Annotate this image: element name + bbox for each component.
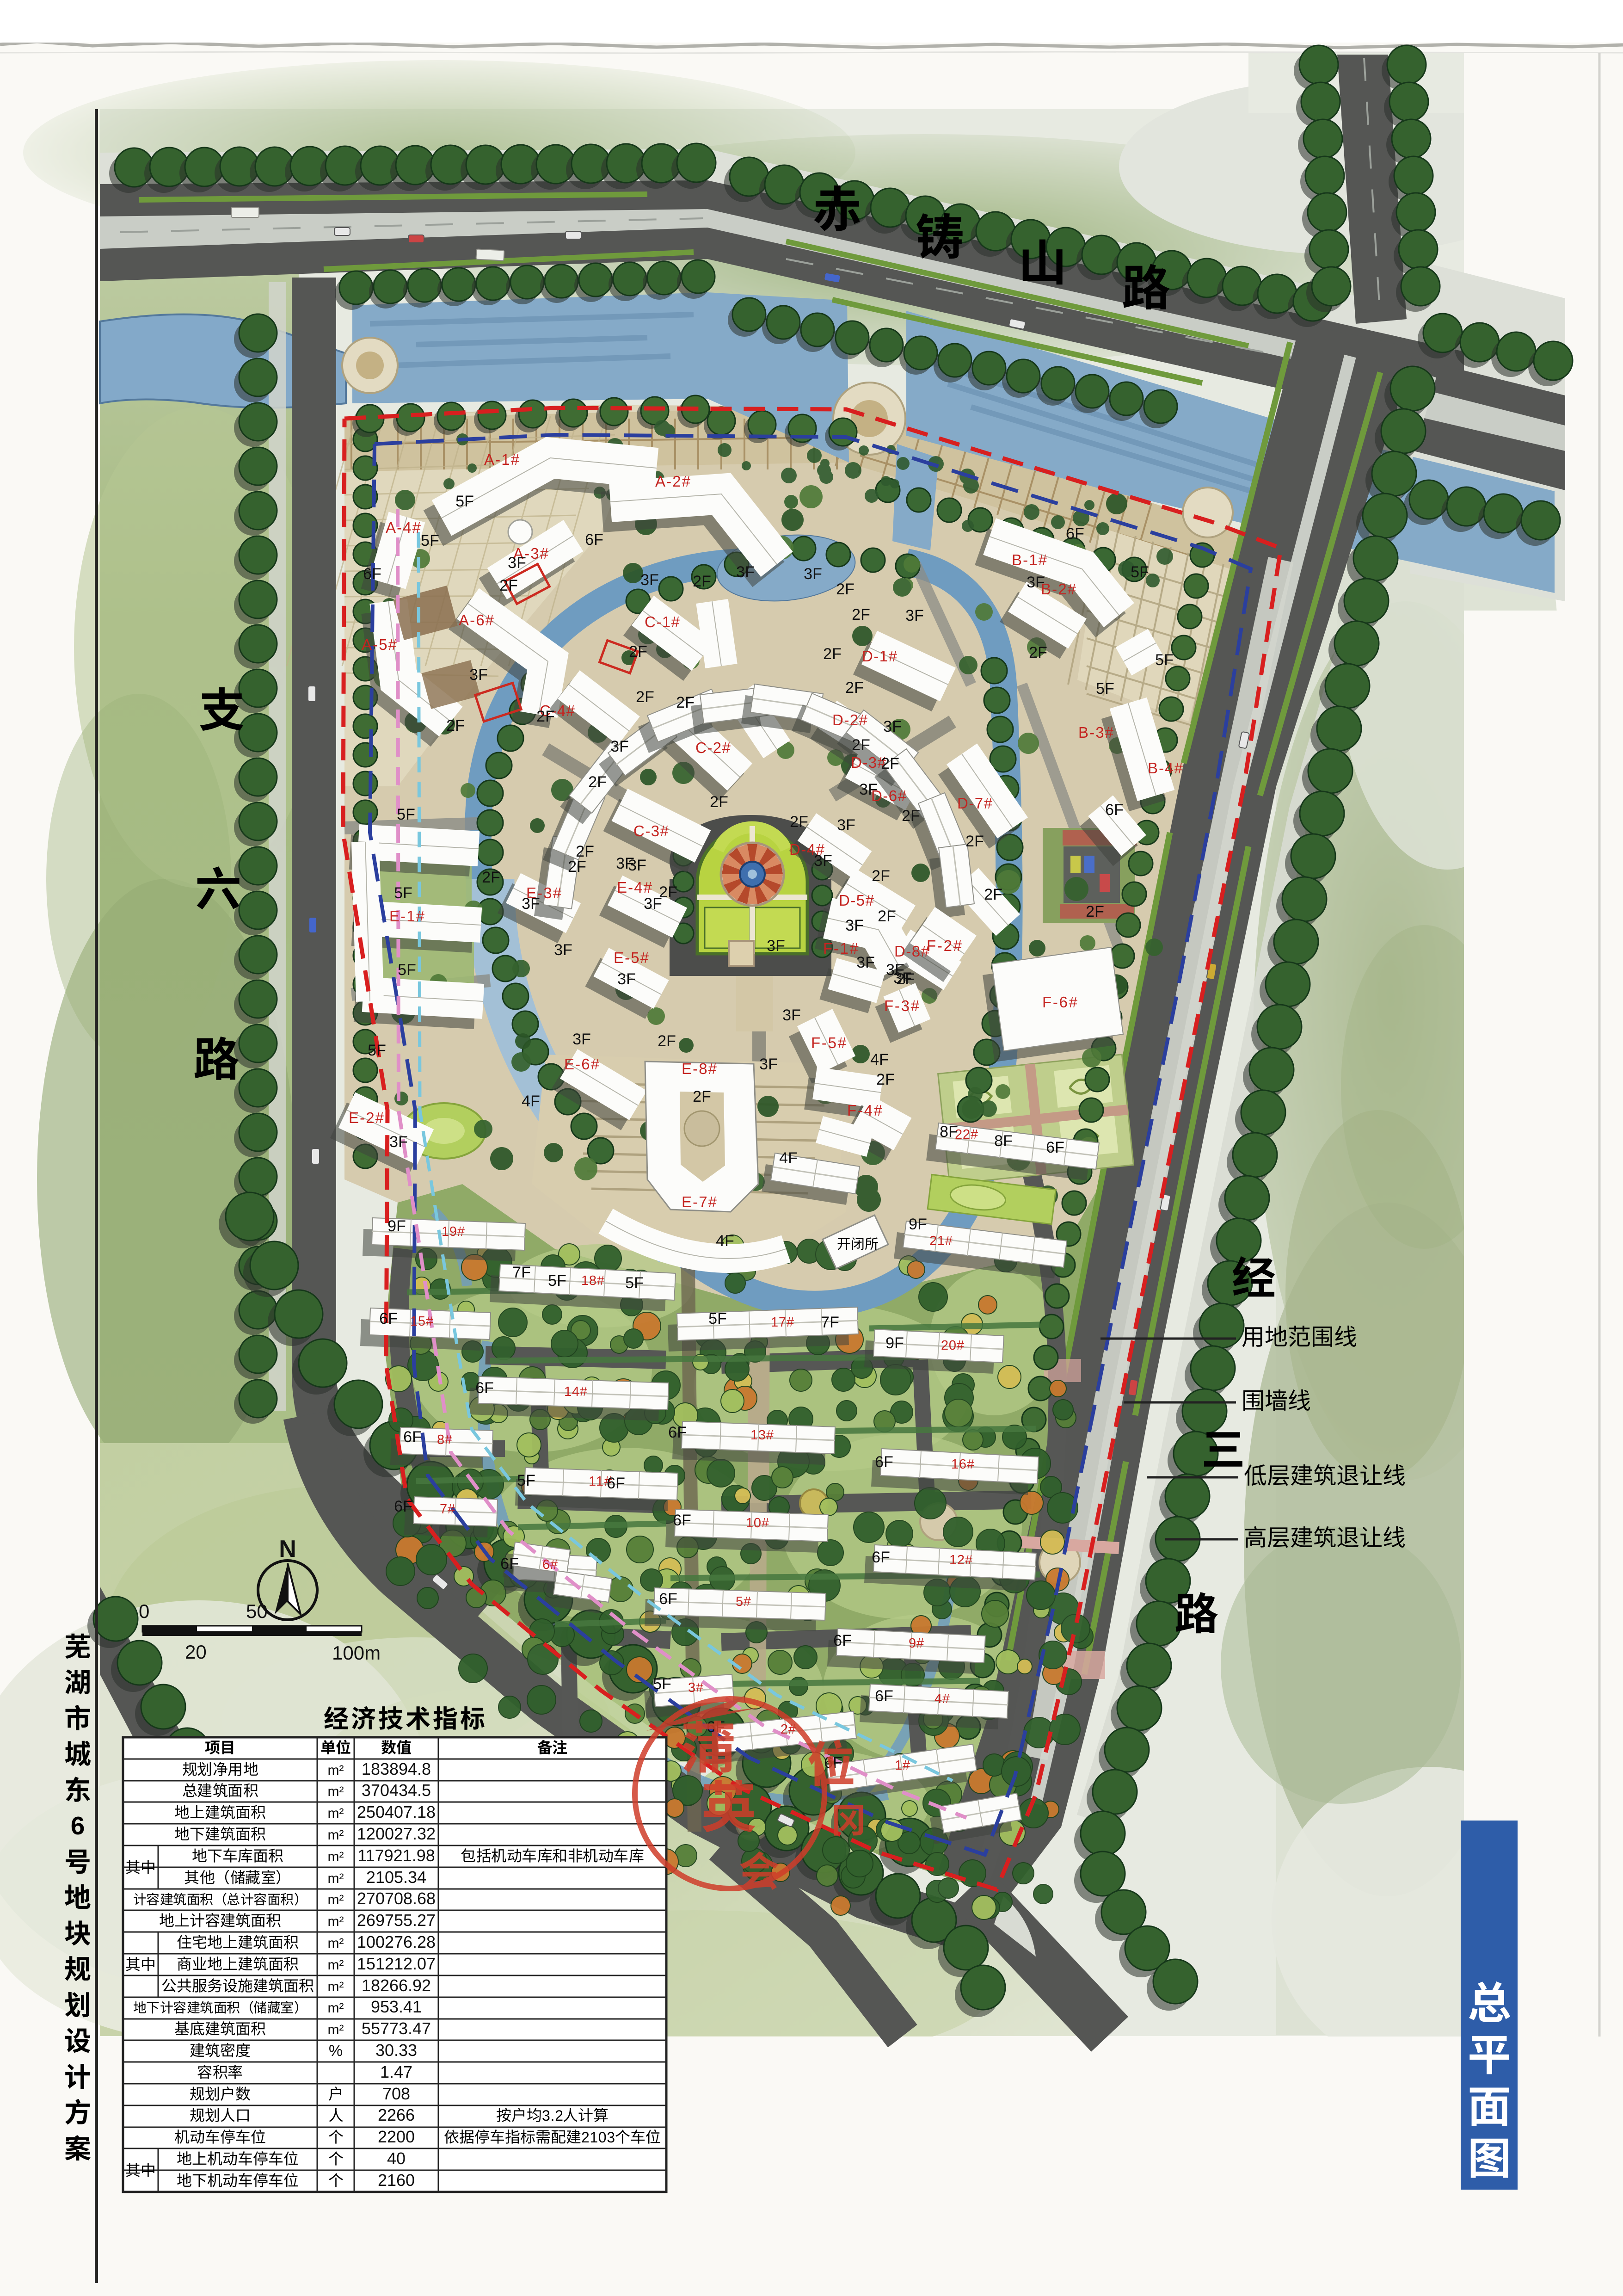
svg-text:2F: 2F	[658, 1032, 676, 1050]
svg-text:6F: 6F	[403, 1428, 422, 1446]
svg-text:10#: 10#	[746, 1516, 769, 1531]
svg-text:3F: 3F	[616, 855, 634, 872]
svg-text:F-6#: F-6#	[1042, 994, 1078, 1011]
svg-text:2F: 2F	[636, 688, 654, 706]
svg-text:250407.18: 250407.18	[357, 1802, 436, 1821]
svg-text:3F: 3F	[522, 895, 540, 913]
svg-text:18266.92: 18266.92	[362, 1976, 431, 1995]
svg-text:D-1#: D-1#	[862, 648, 898, 665]
svg-text:6F: 6F	[500, 1555, 519, 1573]
svg-text:151212.07: 151212.07	[357, 1954, 436, 1973]
svg-text:14#: 14#	[564, 1384, 587, 1399]
svg-text:6: 6	[71, 1811, 85, 1840]
svg-text:6F: 6F	[872, 1549, 890, 1566]
svg-text:9F: 9F	[885, 1334, 904, 1352]
svg-text:4F: 4F	[522, 1092, 540, 1110]
svg-text:2F: 2F	[693, 1088, 711, 1105]
svg-text:17#: 17#	[771, 1315, 794, 1330]
svg-text:3F: 3F	[893, 969, 912, 987]
svg-text:m²: m²	[328, 1936, 344, 1951]
svg-text:8F: 8F	[994, 1132, 1013, 1150]
svg-text:6F: 6F	[875, 1453, 893, 1471]
svg-text:15#: 15#	[410, 1314, 433, 1329]
svg-text:13#: 13#	[750, 1428, 774, 1443]
svg-text:183894.8: 183894.8	[362, 1759, 431, 1778]
svg-text:2F: 2F	[1086, 903, 1104, 920]
svg-text:5F: 5F	[517, 1472, 535, 1489]
svg-text:2F: 2F	[568, 858, 586, 876]
svg-text:m²: m²	[328, 1871, 344, 1886]
svg-text:m²: m²	[328, 1892, 344, 1907]
svg-text:m²: m²	[328, 1763, 344, 1778]
svg-text:4F: 4F	[716, 1232, 734, 1250]
svg-text:2105.34: 2105.34	[366, 1868, 426, 1887]
svg-text:F-3#: F-3#	[884, 997, 920, 1014]
svg-text:6F: 6F	[833, 1632, 852, 1649]
svg-text:5F: 5F	[1155, 651, 1174, 669]
svg-text:1#: 1#	[895, 1758, 910, 1773]
svg-text:A-1#: A-1#	[484, 451, 520, 468]
svg-text:6F: 6F	[607, 1475, 625, 1492]
svg-text:8#: 8#	[437, 1432, 452, 1447]
svg-text:2266: 2266	[378, 2105, 415, 2124]
svg-text:2F: 2F	[629, 643, 647, 660]
svg-text:20#: 20#	[941, 1338, 964, 1353]
svg-text:6F: 6F	[875, 1687, 893, 1705]
svg-text:2F: 2F	[878, 907, 896, 925]
svg-text:2F: 2F	[845, 679, 864, 697]
svg-text:3F: 3F	[644, 895, 662, 913]
svg-text:E-2#: E-2#	[349, 1109, 384, 1126]
svg-text:%: %	[329, 2042, 343, 2060]
svg-text:3F: 3F	[814, 852, 832, 870]
svg-text:50: 50	[246, 1600, 268, 1622]
svg-text:100m: 100m	[332, 1642, 381, 1664]
svg-text:4F: 4F	[870, 1051, 889, 1068]
svg-text:3F: 3F	[469, 666, 488, 684]
svg-text:7F: 7F	[821, 1314, 839, 1331]
svg-text:6#: 6#	[542, 1557, 558, 1572]
svg-text:6F: 6F	[659, 1590, 677, 1608]
svg-text:E-4#: E-4#	[617, 879, 652, 896]
svg-text:2F: 2F	[852, 736, 870, 754]
svg-text:6F: 6F	[475, 1379, 494, 1397]
svg-text:4F: 4F	[779, 1149, 798, 1167]
svg-text:19#: 19#	[442, 1224, 465, 1239]
svg-text:16#: 16#	[951, 1457, 974, 1472]
svg-text:3F: 3F	[736, 563, 755, 581]
svg-text:3F: 3F	[554, 941, 572, 959]
svg-text:30.33: 30.33	[375, 2041, 417, 2060]
svg-text:3#: 3#	[688, 1680, 703, 1695]
svg-text:6F: 6F	[585, 531, 603, 549]
svg-text:A-6#: A-6#	[459, 611, 494, 629]
svg-text:m²: m²	[328, 1914, 344, 1929]
svg-text:2200: 2200	[378, 2127, 415, 2146]
svg-text:N: N	[279, 1536, 296, 1562]
svg-text:D-5#: D-5#	[839, 892, 874, 909]
svg-text:E-8#: E-8#	[682, 1060, 717, 1077]
svg-text:6F: 6F	[379, 1310, 398, 1327]
svg-text:3.2: 3.2	[542, 2107, 563, 2124]
svg-text:5F: 5F	[548, 1272, 566, 1290]
svg-text:2F: 2F	[965, 833, 984, 850]
svg-text:3F: 3F	[856, 954, 875, 971]
svg-text:3F: 3F	[759, 1055, 778, 1073]
svg-text:A-5#: A-5#	[362, 636, 397, 653]
svg-text:5F: 5F	[398, 961, 416, 979]
svg-text:3F: 3F	[572, 1031, 591, 1048]
svg-text:A-2#: A-2#	[655, 473, 691, 490]
svg-text:3F: 3F	[782, 1006, 801, 1024]
svg-text:C-1#: C-1#	[645, 613, 680, 630]
svg-text:B-2#: B-2#	[1041, 580, 1076, 598]
svg-text:3F: 3F	[804, 565, 822, 583]
svg-text:3F: 3F	[859, 781, 878, 798]
svg-text:2F: 2F	[710, 793, 728, 811]
svg-text:E-7#: E-7#	[682, 1193, 717, 1210]
svg-text:3F: 3F	[617, 970, 636, 988]
svg-text:3F: 3F	[1027, 574, 1045, 591]
svg-text:5#: 5#	[736, 1594, 751, 1609]
svg-text:5F: 5F	[394, 884, 412, 902]
svg-text:953.41: 953.41	[371, 1997, 422, 2016]
svg-text:269755.27: 269755.27	[357, 1911, 436, 1930]
svg-text:E-1#: E-1#	[389, 907, 425, 925]
svg-text:2F: 2F	[588, 773, 607, 791]
svg-text:20: 20	[185, 1641, 207, 1663]
svg-text:9F: 9F	[909, 1216, 927, 1233]
svg-text:0: 0	[139, 1600, 149, 1622]
svg-text:2F: 2F	[872, 867, 890, 885]
svg-text:2F: 2F	[693, 573, 711, 590]
svg-text:2F: 2F	[876, 1071, 895, 1088]
svg-text:8F: 8F	[940, 1123, 958, 1141]
svg-text:2F: 2F	[836, 580, 855, 598]
svg-text:B-1#: B-1#	[1012, 551, 1047, 568]
svg-text:3F: 3F	[883, 718, 902, 735]
svg-text:9#: 9#	[909, 1636, 924, 1651]
svg-text:2F: 2F	[823, 645, 842, 663]
svg-text:22#: 22#	[955, 1127, 978, 1142]
svg-text:m²: m²	[328, 1979, 344, 1994]
svg-text:12#: 12#	[949, 1553, 972, 1568]
svg-text:3F: 3F	[845, 917, 864, 934]
svg-text:m²: m²	[328, 1806, 344, 1821]
svg-text:m²: m²	[328, 2000, 344, 2016]
svg-text:m²: m²	[328, 1784, 344, 1799]
svg-text:3F: 3F	[389, 1133, 408, 1151]
svg-text:D-7#: D-7#	[957, 795, 993, 812]
svg-text:2F: 2F	[576, 843, 594, 860]
svg-text:2F: 2F	[1029, 644, 1047, 661]
svg-text:2F: 2F	[881, 755, 899, 772]
svg-text:4#: 4#	[934, 1691, 950, 1706]
svg-text:D-2#: D-2#	[832, 711, 868, 728]
svg-text:5F: 5F	[421, 532, 439, 549]
svg-text:2F: 2F	[852, 606, 870, 623]
svg-text:F-4#: F-4#	[847, 1102, 883, 1119]
svg-text:6F: 6F	[673, 1512, 691, 1529]
svg-text:18#: 18#	[581, 1273, 604, 1288]
svg-text:7#: 7#	[440, 1502, 455, 1517]
svg-text:5F: 5F	[397, 806, 415, 823]
svg-text:2F: 2F	[499, 577, 518, 594]
svg-text:270708.68: 270708.68	[357, 1889, 436, 1908]
svg-text:m²: m²	[328, 2022, 344, 2037]
svg-text:B-4#: B-4#	[1148, 759, 1183, 777]
svg-text:21#: 21#	[929, 1234, 953, 1248]
svg-text:6F: 6F	[394, 1498, 412, 1515]
svg-text:2103: 2103	[581, 2129, 615, 2146]
svg-text:40: 40	[387, 2149, 406, 2168]
svg-text:2F: 2F	[984, 886, 1002, 903]
svg-text:m²: m²	[328, 1827, 344, 1843]
svg-text:708: 708	[382, 2084, 410, 2103]
svg-text:2F: 2F	[902, 807, 920, 825]
svg-text:5F: 5F	[625, 1274, 644, 1292]
svg-text:3F: 3F	[640, 571, 659, 589]
svg-text:5F: 5F	[1096, 680, 1114, 697]
svg-text:A-4#: A-4#	[386, 519, 421, 536]
svg-text:3F: 3F	[837, 816, 855, 834]
svg-text:100276.28: 100276.28	[357, 1932, 436, 1951]
svg-text:5F: 5F	[708, 1310, 727, 1327]
svg-text:C-2#: C-2#	[695, 739, 731, 756]
svg-text:6F: 6F	[1066, 525, 1084, 543]
svg-text:6F: 6F	[668, 1424, 687, 1441]
svg-text:7F: 7F	[512, 1264, 531, 1281]
svg-text:117921.98: 117921.98	[357, 1846, 435, 1865]
svg-text:E-6#: E-6#	[564, 1055, 600, 1073]
svg-text:2F: 2F	[446, 717, 465, 734]
svg-text:5F: 5F	[455, 493, 474, 510]
svg-text:2F: 2F	[790, 813, 808, 831]
svg-text:D-8#: D-8#	[894, 943, 930, 960]
svg-text:C-3#: C-3#	[633, 822, 669, 839]
svg-text:6F: 6F	[1105, 801, 1124, 819]
svg-text:2F: 2F	[676, 694, 695, 711]
svg-text:5F: 5F	[1131, 563, 1149, 581]
svg-text:55773.47: 55773.47	[362, 2019, 431, 2038]
svg-text:F-2#: F-2#	[927, 937, 962, 954]
svg-text:370434.5: 370434.5	[362, 1781, 431, 1800]
svg-text:3F: 3F	[767, 937, 785, 955]
svg-text:F-1#: F-1#	[823, 940, 859, 957]
svg-text:1.47: 1.47	[380, 2062, 412, 2081]
svg-text:m²: m²	[328, 1849, 344, 1864]
svg-text:2F: 2F	[482, 869, 500, 886]
svg-text:2F: 2F	[536, 708, 555, 725]
svg-text:120027.32: 120027.32	[357, 1824, 436, 1843]
svg-text:3F: 3F	[508, 554, 526, 572]
svg-text:B-3#: B-3#	[1078, 724, 1114, 741]
svg-text:6F: 6F	[363, 565, 381, 583]
svg-text:2160: 2160	[378, 2171, 415, 2190]
svg-text:F-5#: F-5#	[811, 1034, 847, 1051]
svg-text:3F: 3F	[905, 607, 924, 624]
svg-text:6F: 6F	[1046, 1139, 1064, 1156]
svg-text:5F: 5F	[653, 1675, 671, 1693]
svg-text:5F: 5F	[368, 1042, 386, 1059]
svg-text:E-5#: E-5#	[614, 949, 649, 966]
svg-text:9F: 9F	[387, 1217, 406, 1235]
svg-text:3F: 3F	[610, 738, 629, 755]
svg-text:m²: m²	[328, 1957, 344, 1973]
